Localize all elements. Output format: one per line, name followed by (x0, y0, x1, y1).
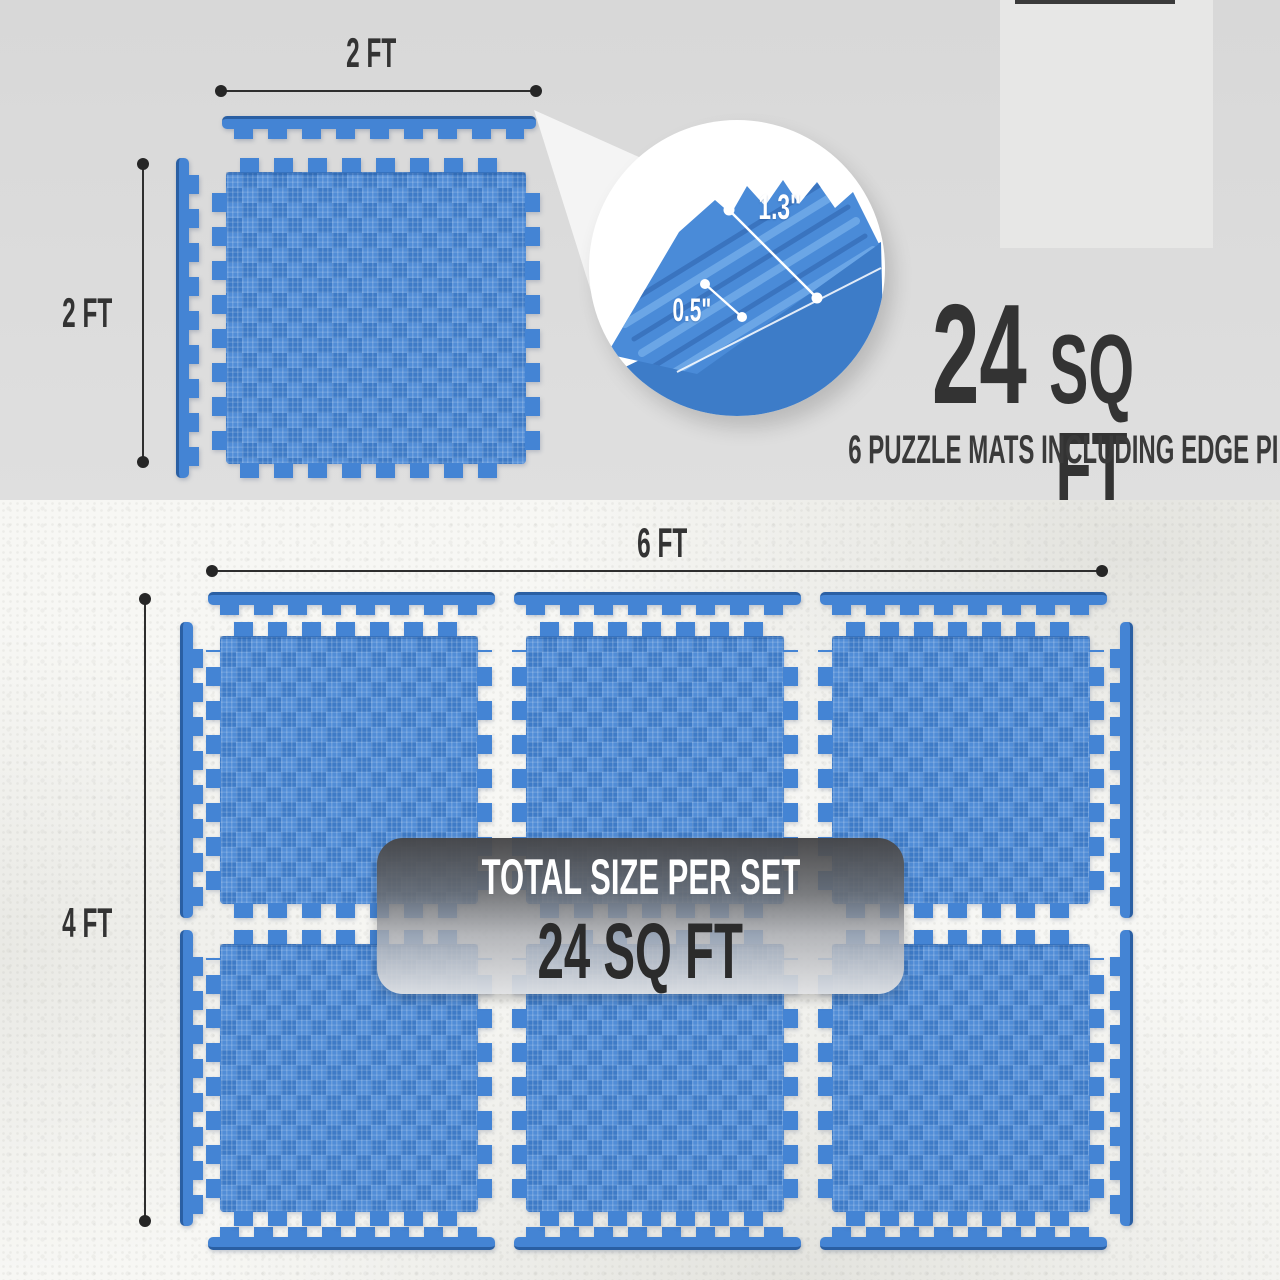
mat-teeth-left (206, 650, 221, 890)
mat-teeth-right (1089, 958, 1104, 1198)
mat-tile-main (212, 158, 540, 478)
height-dim-label-top: 2 FT (30, 292, 130, 334)
coverage-subheadline: 6 PUZZLE MATS INCLUDING EDGE PIECES (683, 430, 1243, 470)
edge-strip-right (1110, 622, 1133, 918)
width-dim-label-top: 2 FT (300, 32, 442, 74)
edge-strip-left (180, 930, 203, 1226)
edge-strip-top (820, 592, 1107, 615)
mat-teeth-bottom (234, 1211, 464, 1226)
mat-teeth-top (846, 622, 1076, 637)
product-infographic: 2 FT 2 FT (0, 0, 1280, 1280)
top-panel: 2 FT 2 FT (0, 0, 1280, 500)
background-highlight-rect (1000, 0, 1213, 248)
height-dim-label-bottom: 4 FT (38, 902, 130, 944)
edge-strip-bottom (820, 1227, 1107, 1250)
width-dim-line-top (220, 90, 537, 92)
mat-edge-shadow (220, 636, 478, 639)
edge-strip-bottom (208, 1227, 495, 1250)
mat-teeth-right (783, 958, 798, 1198)
mat-edge-shadow (832, 636, 1090, 639)
edge-strip-top (208, 592, 495, 615)
edge-strip-left (176, 158, 199, 478)
banner-title: TOTAL SIZE PER SET (377, 852, 904, 902)
edge-strip-right (1110, 930, 1133, 1226)
mat-teeth-left (818, 958, 833, 1198)
total-size-banner: TOTAL SIZE PER SET 24 SQ FT (377, 838, 904, 994)
edge-strip-top (514, 592, 801, 615)
mat-teeth-top (540, 622, 770, 637)
coverage-number: 24 (932, 284, 1027, 426)
mat-edge-shadow (526, 636, 784, 639)
width-dim-line-bottom (211, 570, 1103, 572)
edge-strip-left (180, 622, 203, 918)
bottom-panel: 6 FT 4 FT TOTAL SIZE PER SET 24 SQ FT (0, 500, 1280, 1280)
foam-closeup-illustration (589, 120, 885, 416)
mat-teeth-left (212, 186, 227, 450)
thickness-callout: 1.3" 0.5" (589, 120, 885, 416)
edge-strip-top (222, 116, 536, 139)
mat-teeth-top (240, 158, 512, 173)
mat-edge-shadow (226, 172, 526, 175)
mat-teeth-bottom (540, 1211, 770, 1226)
mat-teeth-left (512, 958, 527, 1198)
mat-teeth-bottom (240, 463, 512, 478)
coverage-unit: SQ FT (1035, 320, 1148, 500)
mat-teeth-left (206, 958, 221, 1198)
height-dim-line-bottom (144, 598, 146, 1222)
mat-teeth-bottom (846, 1211, 1076, 1226)
height-dim-line-top (142, 163, 144, 463)
mat-teeth-right (477, 958, 492, 1198)
thickness-label-primary: 1.3" (730, 190, 830, 225)
mat-teeth-top (234, 622, 464, 637)
banner-value: 24 SQ FT (377, 911, 904, 990)
mat-teeth-right (1089, 650, 1104, 890)
thickness-label-secondary: 0.5" (642, 294, 742, 326)
top-dark-bar (1015, 0, 1175, 4)
edge-strip-bottom (514, 1227, 801, 1250)
width-dim-label-bottom: 6 FT (597, 522, 727, 564)
